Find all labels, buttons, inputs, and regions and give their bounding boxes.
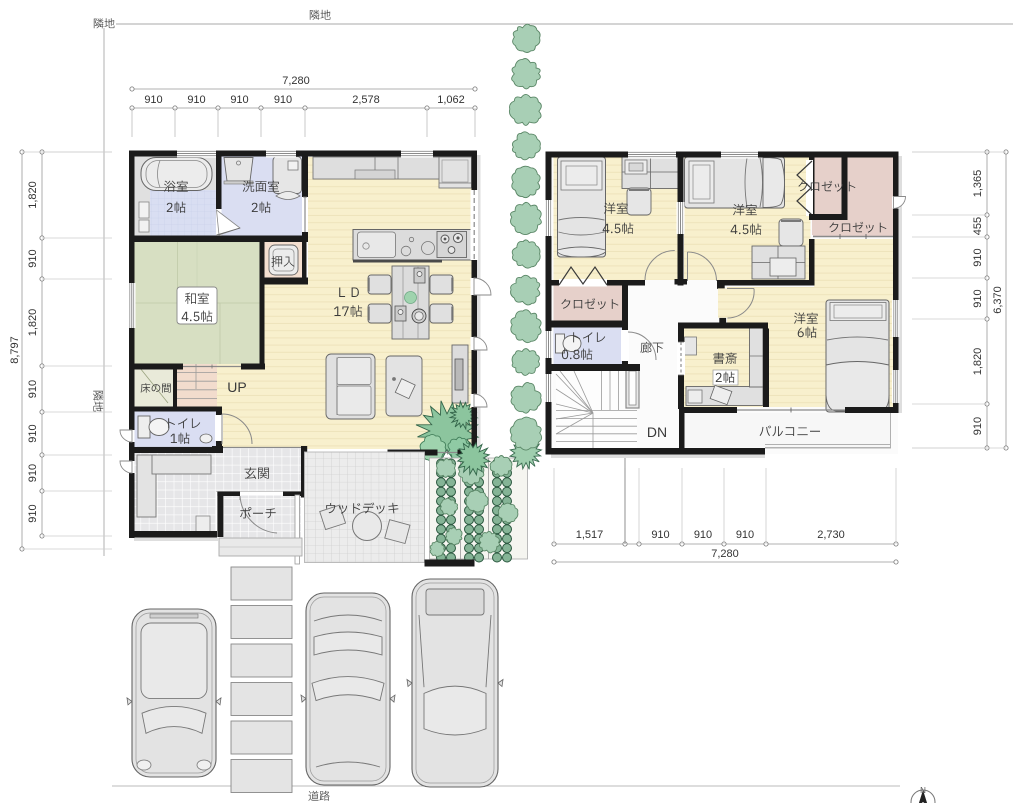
svg-text:910: 910 (230, 94, 248, 106)
svg-text:2,578: 2,578 (352, 94, 380, 106)
svg-text:910: 910 (651, 529, 669, 541)
svg-text:910: 910 (27, 380, 39, 398)
svg-text:N: N (920, 786, 926, 795)
svg-text:910: 910 (274, 94, 292, 106)
svg-text:1,365: 1,365 (972, 170, 984, 198)
svg-text:910: 910 (694, 529, 712, 541)
svg-text:910: 910 (27, 504, 39, 522)
svg-text:1,062: 1,062 (437, 94, 465, 106)
svg-text:910: 910 (736, 529, 754, 541)
svg-text:1,820: 1,820 (972, 348, 984, 376)
svg-text:910: 910 (27, 464, 39, 482)
svg-text:910: 910 (27, 424, 39, 442)
svg-text:910: 910 (187, 94, 205, 106)
svg-text:2,730: 2,730 (817, 529, 845, 541)
svg-text:455: 455 (972, 217, 984, 235)
svg-text:UP: UP (227, 379, 246, 395)
svg-text:6,370: 6,370 (992, 286, 1004, 314)
svg-text:910: 910 (972, 417, 984, 435)
svg-text:1,820: 1,820 (27, 181, 39, 209)
svg-text:8,797: 8,797 (9, 336, 21, 364)
svg-text:7,280: 7,280 (711, 548, 739, 560)
svg-text:DN: DN (647, 424, 667, 440)
svg-text:910: 910 (972, 289, 984, 307)
svg-text:1,820: 1,820 (27, 309, 39, 337)
svg-text:7,280: 7,280 (282, 75, 310, 87)
svg-text:910: 910 (972, 248, 984, 266)
svg-text:1,517: 1,517 (576, 529, 604, 541)
svg-text:910: 910 (144, 94, 162, 106)
svg-text:910: 910 (27, 249, 39, 267)
